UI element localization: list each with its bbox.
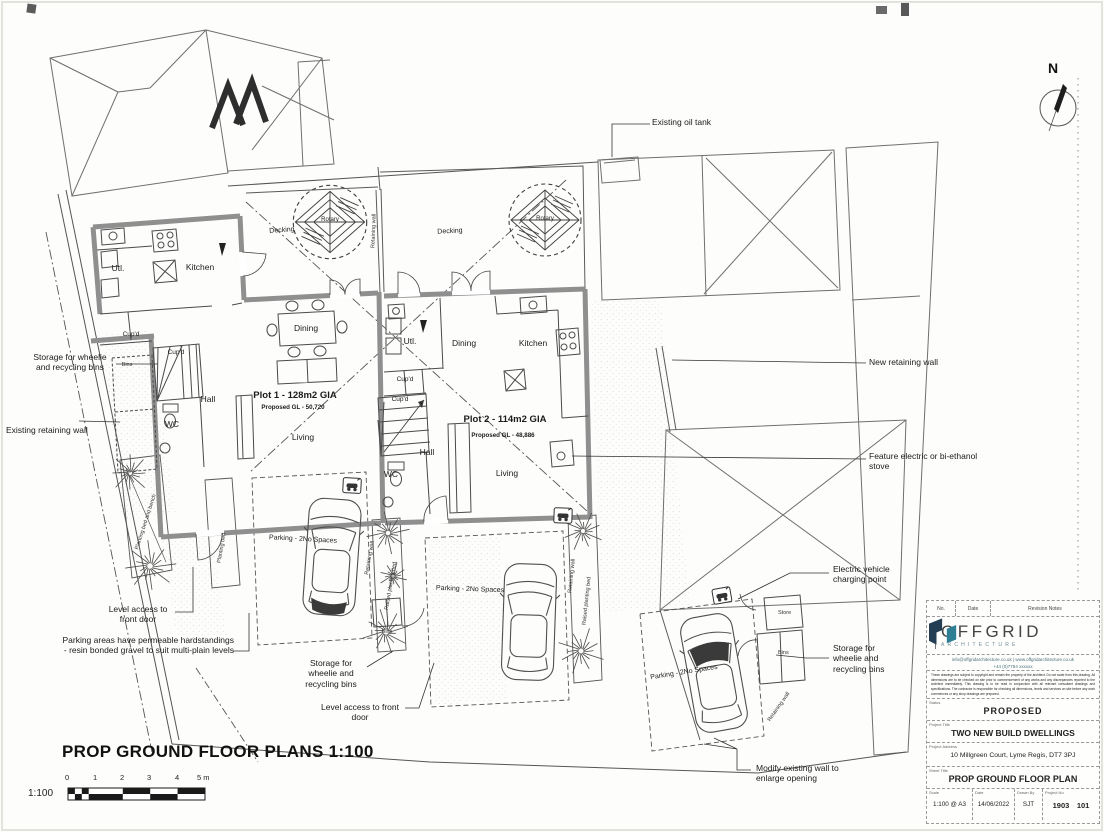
- annotation-storage-bins-right: Storage for wheelie and recycling bins: [833, 643, 893, 674]
- rotary-plot2-label: Rotary: [536, 216, 554, 223]
- revision-notes-header: Revision Notes: [991, 601, 1099, 616]
- title-block: No. Date Revision Notes OFFGRID ARCHITEC…: [926, 600, 1100, 824]
- room-plot1-cupd-a: Cup'd: [123, 331, 140, 339]
- contact-row: info@offgridarchitecture.co.uk | www.off…: [927, 655, 1099, 671]
- decking-outlines: [246, 166, 585, 292]
- scale-tick-5: 5 m: [197, 773, 210, 782]
- annotation-permeable-parking: Parking areas have permeable hardstandin…: [58, 635, 234, 656]
- north-arrow: [1040, 84, 1076, 131]
- room-plot2-living: Living: [496, 468, 518, 478]
- date-cell-value: 14/06/2022: [973, 801, 1014, 808]
- plot2-name: Plot 2 - 114m2 GIA: [464, 414, 547, 426]
- annotation-existing-retaining-wall: Existing retaining wall: [6, 425, 88, 435]
- project-title-value: TWO NEW BUILD DWELLINGS: [927, 728, 1099, 738]
- decking-plot2-label: Decking: [437, 227, 463, 237]
- scanned-floor-plan-sheet: Existing oil tank New retaining wall Fea…: [0, 0, 1104, 832]
- sheet-title-value: PROP GROUND FLOOR PLAN: [927, 774, 1099, 784]
- scale-bar: [68, 788, 205, 800]
- room-plot2-utl: Utl.: [404, 336, 417, 346]
- drawn-by-cell: Drawn By SJT: [1015, 789, 1043, 820]
- date-cell: Date 14/06/2022: [973, 789, 1015, 820]
- bins-right-label: Bins: [778, 650, 789, 657]
- scale-tick-1: 1: [93, 773, 97, 782]
- room-plot1-utl: Utl.: [112, 263, 125, 273]
- revision-no-header: No.: [927, 601, 956, 616]
- project-no-cell: Project No 1903 101: [1043, 789, 1099, 820]
- room-plot1-dining: Dining: [294, 323, 318, 333]
- retaining-wall-label-decks: Retaining wall: [370, 214, 377, 248]
- room-plot1-kitchen: Kitchen: [186, 262, 214, 272]
- sheet-title-row: Sheet Title PROP GROUND FLOOR PLAN: [927, 767, 1099, 789]
- contact-line-1: info@offgridarchitecture.co.uk | www.off…: [927, 656, 1099, 663]
- rotary-plot1-label: Rotary: [321, 217, 339, 224]
- logo-row: OFFGRID ARCHITECTURE: [927, 617, 1099, 655]
- scale-tick-2: 2: [120, 773, 124, 782]
- contact-line-2: +44 (0)7754 xxxxxx: [927, 663, 1099, 670]
- project-address-field-label: Project Address: [929, 744, 957, 749]
- annotation-storage-bins-left: Storage for wheelie and recycling bins: [30, 352, 110, 373]
- room-plot2-dining: Dining: [452, 338, 476, 348]
- date-cell-label: Date: [975, 790, 983, 795]
- room-plot2-cupd-a: Cup'd: [397, 376, 414, 384]
- meta-row: Scale 1:100 @ A3 Date 14/06/2022 Drawn B…: [927, 789, 1099, 820]
- sheet-main-title: PROP GROUND FLOOR PLANS 1:100: [62, 742, 374, 762]
- room-plot2-hall: Hall: [420, 447, 435, 457]
- room-plot1-hall: Hall: [201, 394, 216, 404]
- room-plot1-cupd-b: Cup'd: [168, 349, 185, 357]
- scale-ratio-label: 1:100: [28, 788, 53, 799]
- annotation-modify-wall: Modify existing wall to enlarge opening: [756, 763, 854, 784]
- scale-tick-0: 0: [65, 773, 69, 782]
- room-plot2-kitchen: Kitchen: [519, 338, 547, 348]
- project-no-cell-label: Project No: [1045, 790, 1064, 795]
- revision-header-row: No. Date Revision Notes: [927, 601, 1099, 617]
- room-plot2-cupd-b: Cup'd: [392, 396, 409, 404]
- scale-tick-3: 3: [147, 773, 151, 782]
- project-title-field-label: Project Title: [929, 722, 950, 727]
- annotation-storage-bins-mid: Storage for wheelie and recycling bins: [298, 658, 364, 689]
- scale-cell-value: 1:100 @ A3: [927, 801, 972, 808]
- room-plot1-bins: Bins: [122, 362, 133, 369]
- room-plot2-wc: WC: [384, 469, 398, 479]
- store-right-label: Store: [778, 610, 791, 617]
- annotation-level-access-left: Level access to front door: [100, 604, 176, 625]
- annotation-level-access-mid: Level access to front door: [318, 702, 402, 723]
- drawn-by-cell-label: Drawn By: [1017, 790, 1034, 795]
- annotation-ev-charging: Electric vehicle charging point: [833, 564, 905, 585]
- drawn-by-cell-value: SJT: [1015, 801, 1042, 808]
- revision-date-header: Date: [956, 601, 991, 616]
- plot1-name: Plot 1 - 128m2 GIA: [253, 390, 336, 402]
- bins-mid-label: Bins: [382, 629, 393, 636]
- plot2-proposed-gl: Proposed GL - 48,886: [471, 432, 534, 440]
- sheet-title-field-label: Sheet Title: [929, 768, 948, 773]
- project-address-row: Project Address 10 Millgreen Court, Lyme…: [927, 743, 1099, 767]
- status-row: Status PROPOSED: [927, 699, 1099, 721]
- plot1-proposed-gl: Proposed GL - 50,720: [261, 404, 324, 412]
- status-field-label: Status: [929, 700, 940, 705]
- project-title-row: Project Title TWO NEW BUILD DWELLINGS: [927, 721, 1099, 743]
- scale-cell-label: Scale: [929, 790, 939, 795]
- project-no-cell-value: 1903 101: [1043, 801, 1099, 810]
- annotation-feature-stove: Feature electric or bi-ethanol stove: [869, 451, 987, 472]
- disclaimer-fine-print: These drawings are subject to copyright …: [927, 671, 1099, 699]
- annotation-existing-oil-tank: Existing oil tank: [652, 117, 711, 127]
- decking-plot1-label: Decking: [269, 226, 295, 236]
- project-address-value: 10 Millgreen Court, Lyme Regis, DT7 3PJ: [927, 752, 1099, 759]
- scale-cell: Scale 1:100 @ A3: [927, 789, 973, 820]
- annotation-new-retaining-wall: New retaining wall: [869, 357, 938, 367]
- offgrid-logo-icon: [927, 617, 961, 647]
- scale-tick-4: 4: [175, 773, 179, 782]
- room-plot1-wc: WC: [165, 419, 179, 429]
- room-plot1-living: Living: [292, 432, 314, 442]
- status-value: PROPOSED: [927, 706, 1099, 716]
- north-label: N: [1048, 60, 1058, 76]
